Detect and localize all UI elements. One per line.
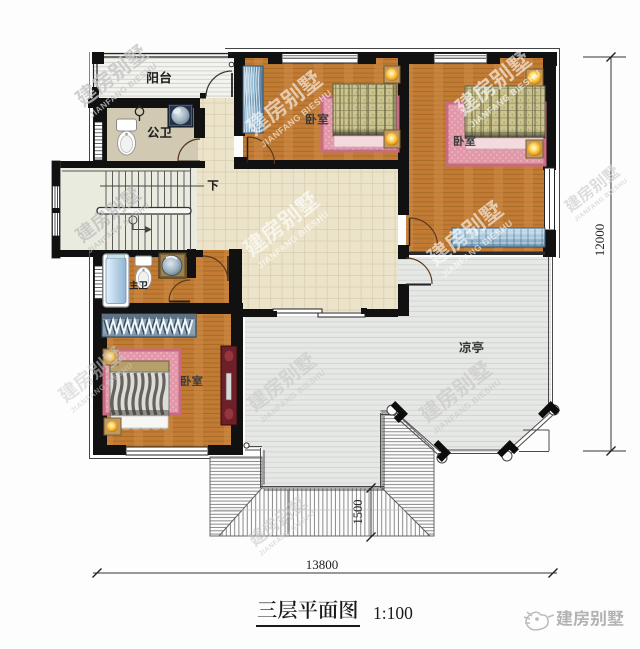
svg-text:12000: 12000: [592, 224, 607, 257]
svg-text:1:100: 1:100: [373, 603, 413, 623]
svg-text:1500: 1500: [351, 500, 365, 525]
svg-text:13800: 13800: [306, 557, 339, 572]
